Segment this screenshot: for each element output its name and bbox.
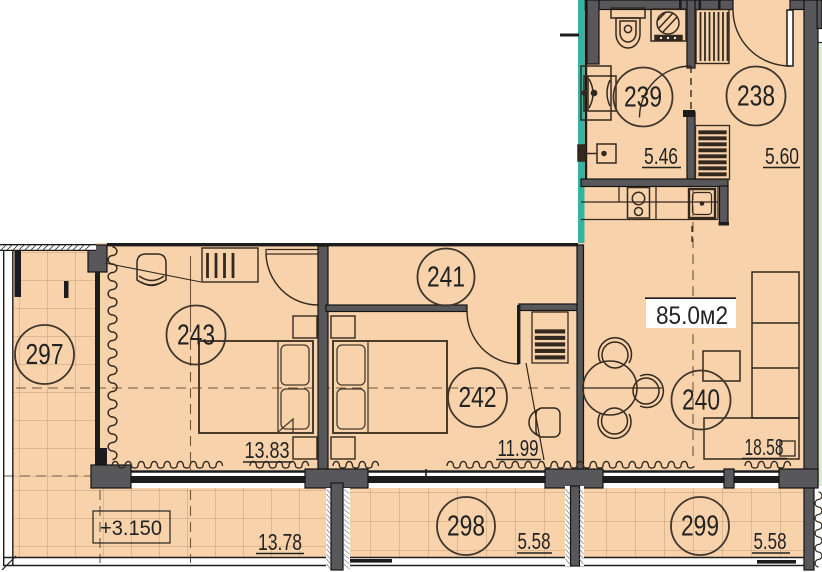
svg-text:5.58: 5.58 <box>754 528 787 554</box>
svg-text:5.60: 5.60 <box>765 143 799 169</box>
svg-text:85.0м2: 85.0м2 <box>656 302 728 330</box>
svg-text:299: 299 <box>681 511 719 543</box>
svg-text:239: 239 <box>624 82 662 114</box>
svg-text:238: 238 <box>737 81 775 113</box>
svg-text:11.99: 11.99 <box>498 435 539 461</box>
svg-text:298: 298 <box>447 511 485 543</box>
svg-text:241: 241 <box>427 262 465 294</box>
svg-text:13.78: 13.78 <box>258 529 302 555</box>
svg-text:5.46: 5.46 <box>644 143 678 169</box>
svg-text:+3.150: +3.150 <box>100 517 162 540</box>
svg-text:13.83: 13.83 <box>245 437 290 463</box>
svg-text:242: 242 <box>459 382 497 414</box>
svg-text:297: 297 <box>26 339 64 371</box>
svg-text:5.58: 5.58 <box>518 528 551 554</box>
svg-text:243: 243 <box>177 320 215 352</box>
svg-text:240: 240 <box>682 385 720 417</box>
svg-text:18.58: 18.58 <box>745 434 784 460</box>
